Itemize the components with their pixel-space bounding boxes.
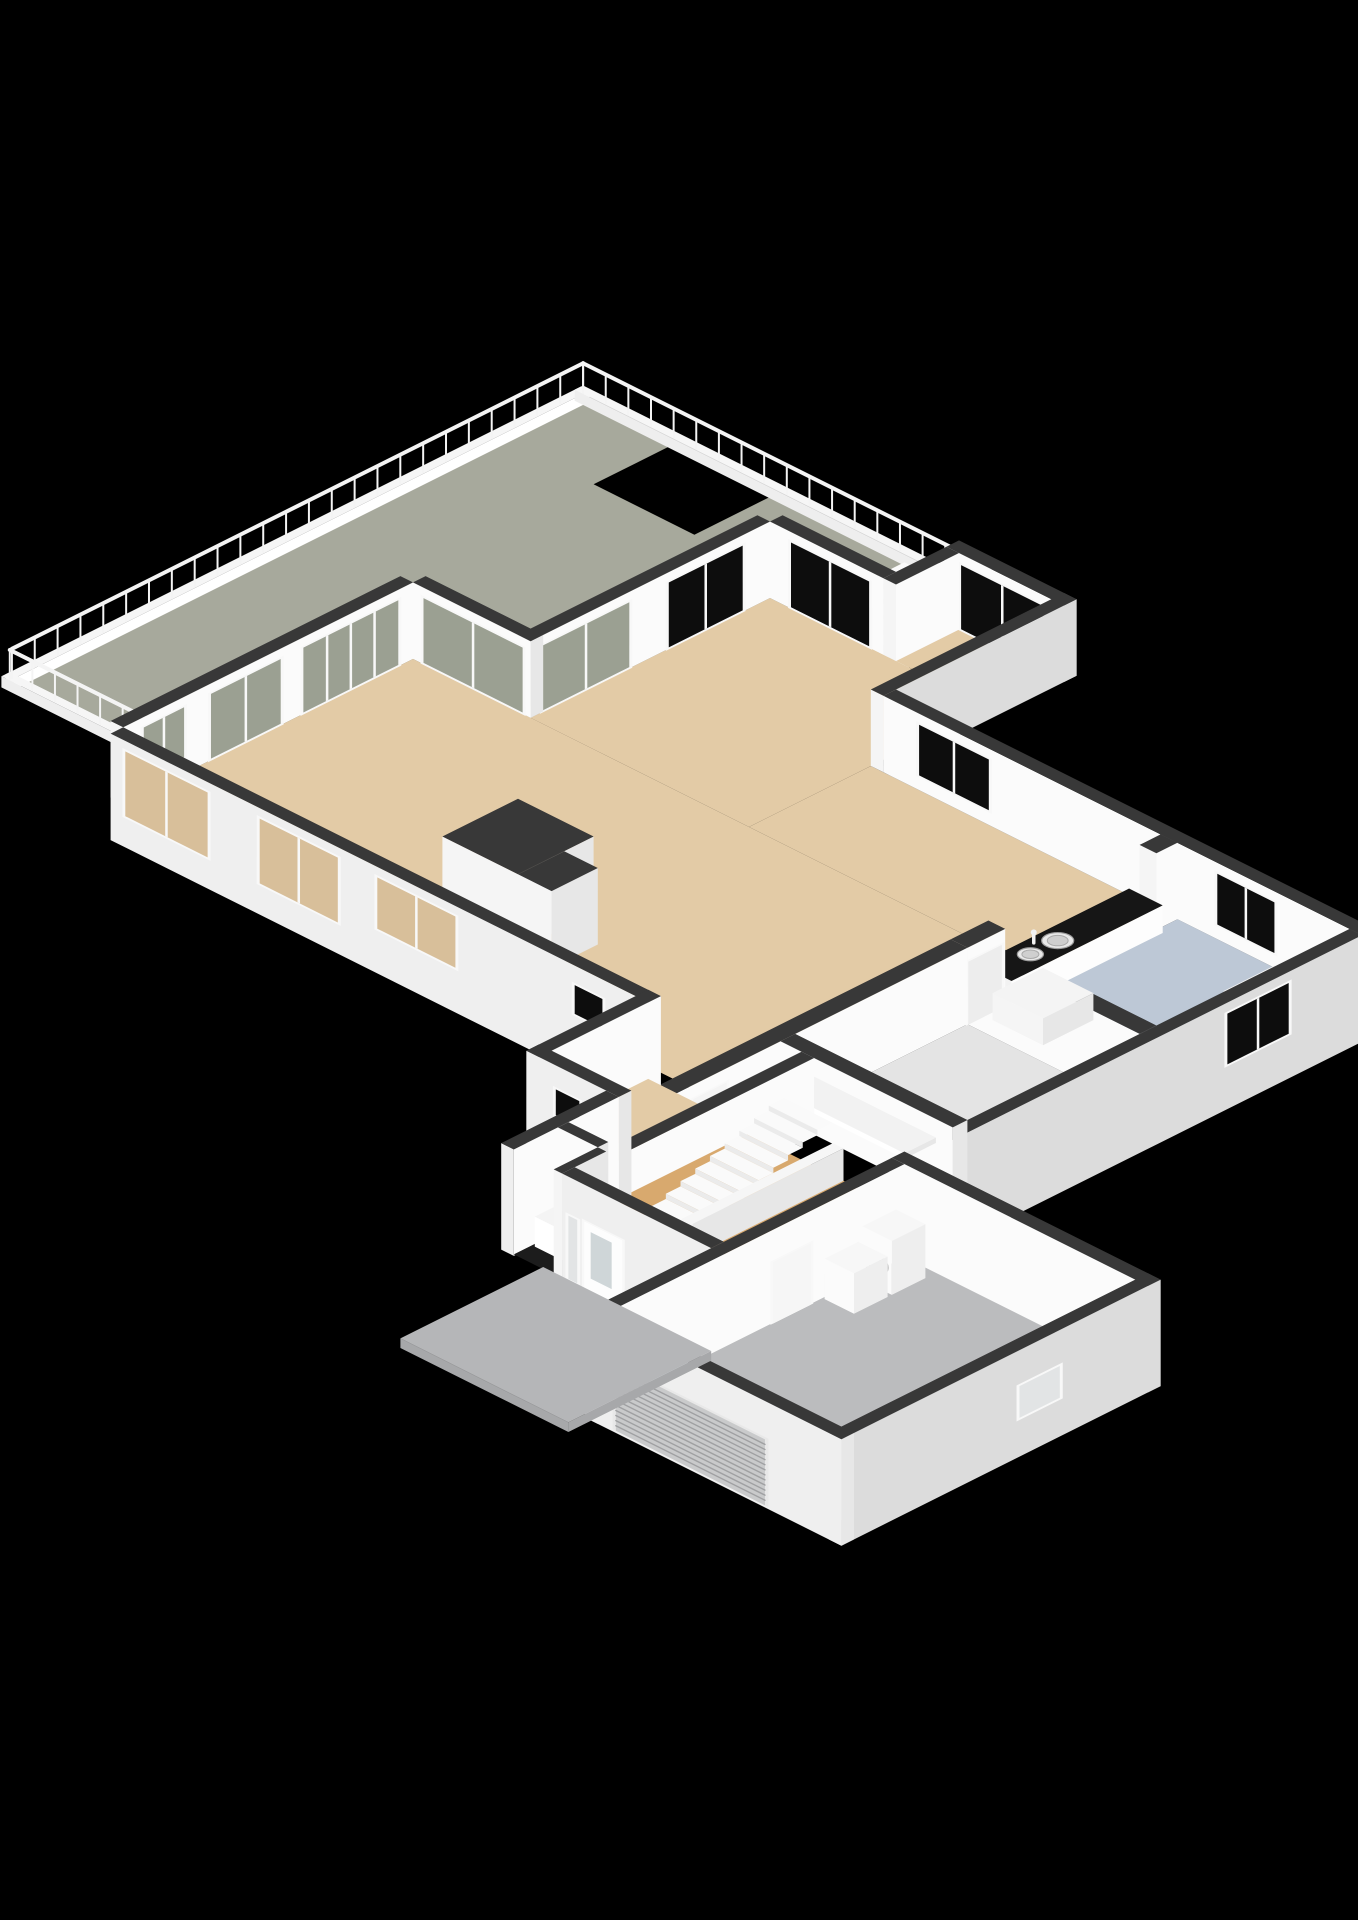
- front-door-sidelight: [565, 1212, 580, 1287]
- floorplan-3d-render: [0, 0, 1358, 1920]
- floorplan-3d-canvas: [0, 0, 1358, 1920]
